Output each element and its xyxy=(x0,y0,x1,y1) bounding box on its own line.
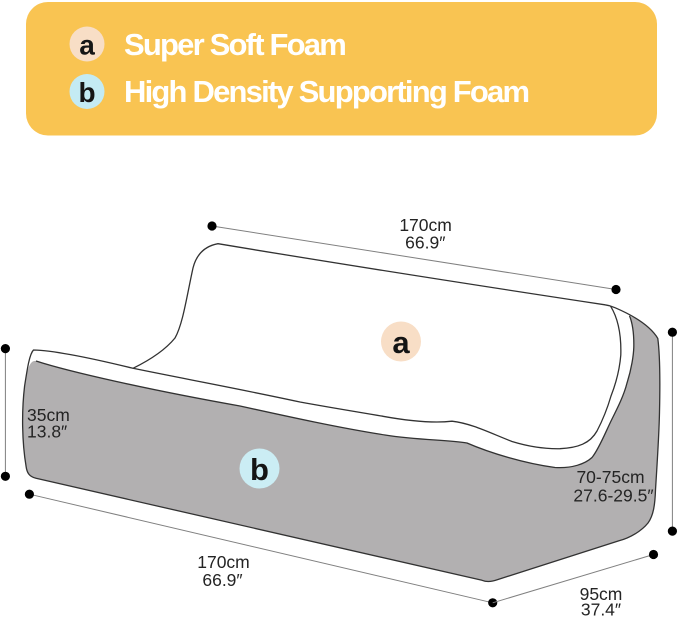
svg-text:b: b xyxy=(250,452,269,487)
svg-text:170cm: 170cm xyxy=(197,552,250,572)
svg-text:a: a xyxy=(392,325,410,360)
svg-text:13.8″: 13.8″ xyxy=(27,422,67,442)
svg-text:66.9″: 66.9″ xyxy=(202,570,242,590)
svg-text:a: a xyxy=(79,30,95,61)
svg-text:b: b xyxy=(78,77,95,108)
svg-text:37.4″: 37.4″ xyxy=(581,600,621,617)
svg-text:70-75cm: 70-75cm xyxy=(576,467,644,487)
svg-text:Super Soft Foam: Super Soft Foam xyxy=(124,27,345,62)
svg-text:High Density Supporting Foam: High Density Supporting Foam xyxy=(124,74,528,109)
svg-text:66.9″: 66.9″ xyxy=(405,233,445,253)
svg-text:27.6-29.5″: 27.6-29.5″ xyxy=(573,486,653,506)
